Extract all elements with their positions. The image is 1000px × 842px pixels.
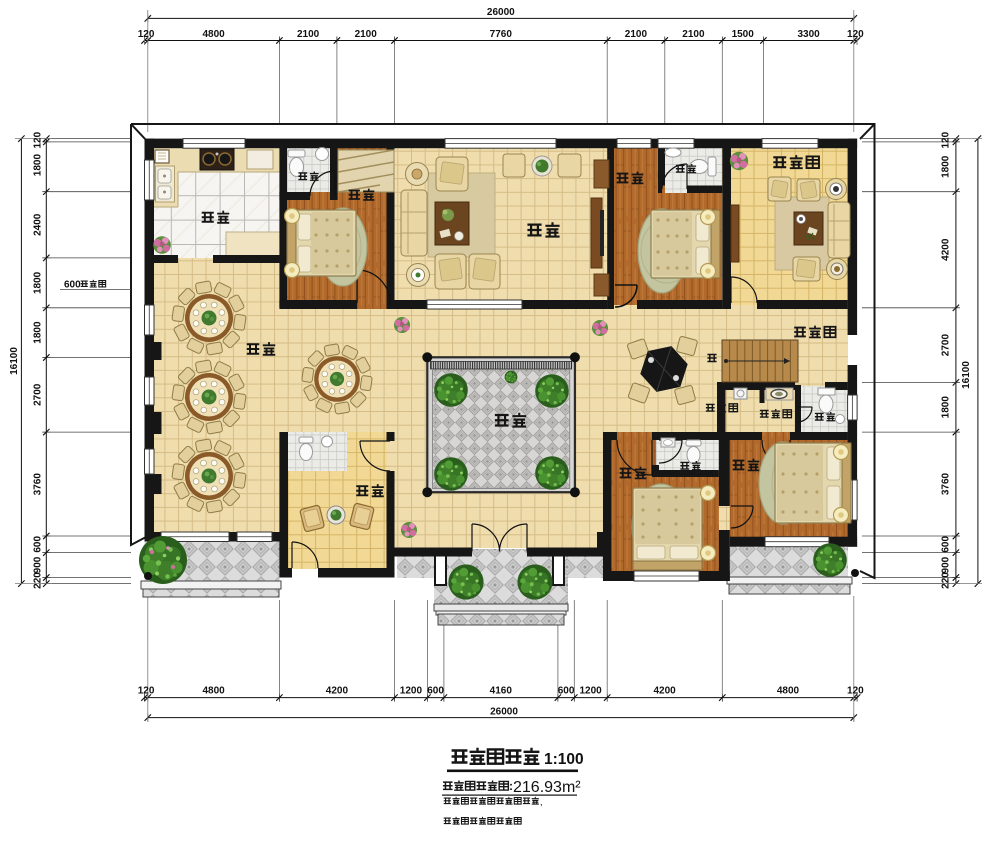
svg-text:16100: 16100 — [9, 347, 20, 375]
svg-text:600: 600 — [941, 536, 952, 553]
svg-text:900: 900 — [33, 556, 44, 573]
svg-text:1800: 1800 — [941, 155, 952, 178]
svg-text:2400: 2400 — [33, 213, 44, 236]
svg-text:4800: 4800 — [202, 685, 225, 696]
svg-text:1800: 1800 — [33, 321, 44, 344]
svg-text:120: 120 — [941, 131, 952, 148]
svg-text:1500: 1500 — [732, 29, 755, 40]
svg-text:4200: 4200 — [653, 685, 676, 696]
svg-text:4200: 4200 — [941, 238, 952, 261]
svg-text:3760: 3760 — [941, 472, 952, 495]
svg-text:16100: 16100 — [961, 361, 972, 389]
svg-text:120: 120 — [847, 685, 864, 696]
svg-text:2100: 2100 — [625, 29, 648, 40]
svg-text:120: 120 — [138, 29, 155, 40]
svg-text:1800: 1800 — [941, 396, 952, 419]
svg-text:2100: 2100 — [297, 29, 320, 40]
svg-text:600: 600 — [33, 536, 44, 553]
svg-text:1200: 1200 — [579, 685, 602, 696]
svg-text:220: 220 — [33, 572, 44, 589]
svg-text:4200: 4200 — [326, 685, 349, 696]
svg-text:2100: 2100 — [682, 29, 705, 40]
svg-text:7760: 7760 — [490, 29, 513, 40]
svg-text:3760: 3760 — [33, 473, 44, 496]
svg-text:120: 120 — [33, 131, 44, 148]
svg-text:900: 900 — [941, 556, 952, 573]
svg-text:120: 120 — [138, 685, 155, 696]
svg-text:1800: 1800 — [33, 154, 44, 177]
svg-text:2100: 2100 — [355, 29, 378, 40]
svg-text:2700: 2700 — [941, 334, 952, 357]
svg-text:26000: 26000 — [487, 7, 515, 18]
svg-text:600: 600 — [427, 685, 444, 696]
svg-text:26000: 26000 — [490, 707, 518, 718]
svg-text:600: 600 — [64, 280, 81, 291]
svg-text:1800: 1800 — [33, 271, 44, 294]
svg-text:1:100: 1:100 — [544, 751, 584, 768]
svg-text:4800: 4800 — [202, 29, 225, 40]
svg-text:216.93m²: 216.93m² — [513, 779, 581, 796]
svg-text:600: 600 — [558, 685, 575, 696]
svg-text:4160: 4160 — [490, 685, 513, 696]
svg-text:220: 220 — [941, 572, 952, 589]
svg-text:3300: 3300 — [797, 29, 820, 40]
svg-text:2700: 2700 — [33, 383, 44, 406]
svg-text:4800: 4800 — [777, 685, 800, 696]
svg-text:120: 120 — [847, 29, 864, 40]
svg-text:1200: 1200 — [400, 685, 423, 696]
svg-text:,: , — [540, 797, 543, 807]
